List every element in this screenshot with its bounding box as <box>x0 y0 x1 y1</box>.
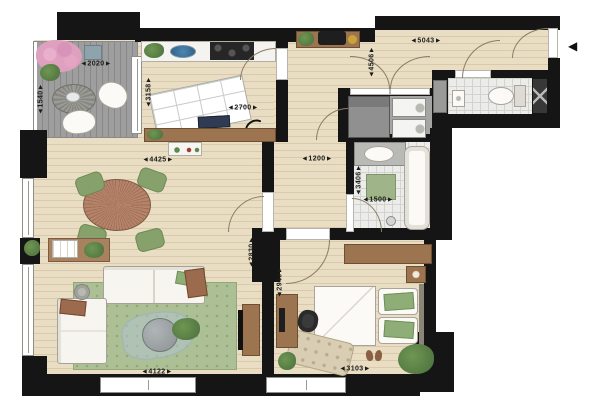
balcony-plant-pot <box>40 64 60 81</box>
dim-4425: ◄4425► <box>142 157 174 164</box>
door-opening-bedroom <box>286 228 330 240</box>
dim-2700: ◄2700► <box>227 105 259 112</box>
bed-cushion-green <box>383 320 414 339</box>
side-lamp <box>74 284 90 300</box>
tv-cabinet <box>242 304 260 356</box>
window-living-bottom <box>100 377 196 393</box>
kitchen-lower-counter <box>144 128 276 142</box>
dim-5043: ◄5043► <box>410 38 442 45</box>
wall <box>548 58 560 120</box>
desk-monitor <box>279 308 285 332</box>
kitchen-sink <box>170 45 196 58</box>
coffee-table-round <box>142 318 178 352</box>
dim-1200: ◄1200► <box>301 156 333 163</box>
toilet-bowl <box>488 87 514 105</box>
sideboard-plant <box>84 242 104 258</box>
entry-door <box>548 28 558 58</box>
entry-arrow-icon: ◀ <box>568 40 577 52</box>
door-opening-kitchen <box>276 48 288 80</box>
kitchen-hob <box>210 42 254 60</box>
dim-1500: ◄1500► <box>362 197 394 204</box>
sofa-throw-brown <box>184 268 208 299</box>
sofa-throw-brown <box>59 299 86 317</box>
closet-door-right <box>390 88 430 95</box>
hall-cabinet <box>433 80 447 113</box>
bathtub <box>404 146 430 230</box>
dim-3158: ◄3158► <box>146 76 153 108</box>
balcony-side-table <box>84 45 102 60</box>
washing-machine <box>392 98 426 117</box>
toilet-basin <box>452 90 465 107</box>
wall <box>432 114 560 128</box>
dim-1540: ◄1540► <box>38 83 45 115</box>
coffee-table-plant <box>172 318 200 340</box>
floor-plan: ◄2020► ◄1540► ◄3158► ◄2700► ◄4425► ◄5043… <box>0 0 600 400</box>
dim-2020: ◄2020► <box>80 61 112 68</box>
bed-headboard <box>419 284 424 346</box>
dryer <box>392 119 426 138</box>
shower-drain <box>386 216 396 226</box>
dim-3103: ◄3103► <box>339 366 371 373</box>
dim-3406: ◄3406► <box>356 164 363 196</box>
dim-2830: ◄2830► <box>249 236 256 268</box>
window-left-upper <box>22 178 34 238</box>
dim-4122: ◄4122► <box>141 369 173 376</box>
wardrobe <box>348 96 390 138</box>
hall-plant <box>298 32 314 46</box>
hall-bags <box>318 31 346 45</box>
window-bedroom-bottom <box>266 377 346 393</box>
bed-cushion-green <box>383 292 414 311</box>
windowsill-plant <box>24 240 40 256</box>
sideboard-books <box>52 240 78 258</box>
bedroom-dresser <box>344 244 432 264</box>
kitchen-counter-plant <box>147 129 163 140</box>
wall <box>57 12 140 40</box>
toilet-tank <box>514 85 526 107</box>
shaft <box>532 78 548 114</box>
tv-screen <box>238 310 243 350</box>
wall <box>20 130 47 178</box>
window-left-lower <box>22 264 34 356</box>
kitchen-plant <box>144 43 164 58</box>
hall-candles <box>348 35 357 44</box>
wall <box>375 16 560 30</box>
closet-door-left <box>350 88 390 95</box>
dim-2940: ◄2940► <box>277 266 284 298</box>
serving-tray <box>168 142 202 156</box>
dim-4506: ◄4506► <box>369 46 376 78</box>
bedroom-plant <box>398 344 434 374</box>
wall <box>430 128 452 240</box>
wall <box>22 356 47 396</box>
washbasin <box>364 146 394 162</box>
nightstand <box>406 266 426 283</box>
kitchen-desk-monitor <box>198 115 231 129</box>
window-balcony-living <box>131 56 142 134</box>
wall <box>262 282 274 376</box>
balcony-table-plate <box>66 92 80 102</box>
desk-plant <box>278 352 296 370</box>
